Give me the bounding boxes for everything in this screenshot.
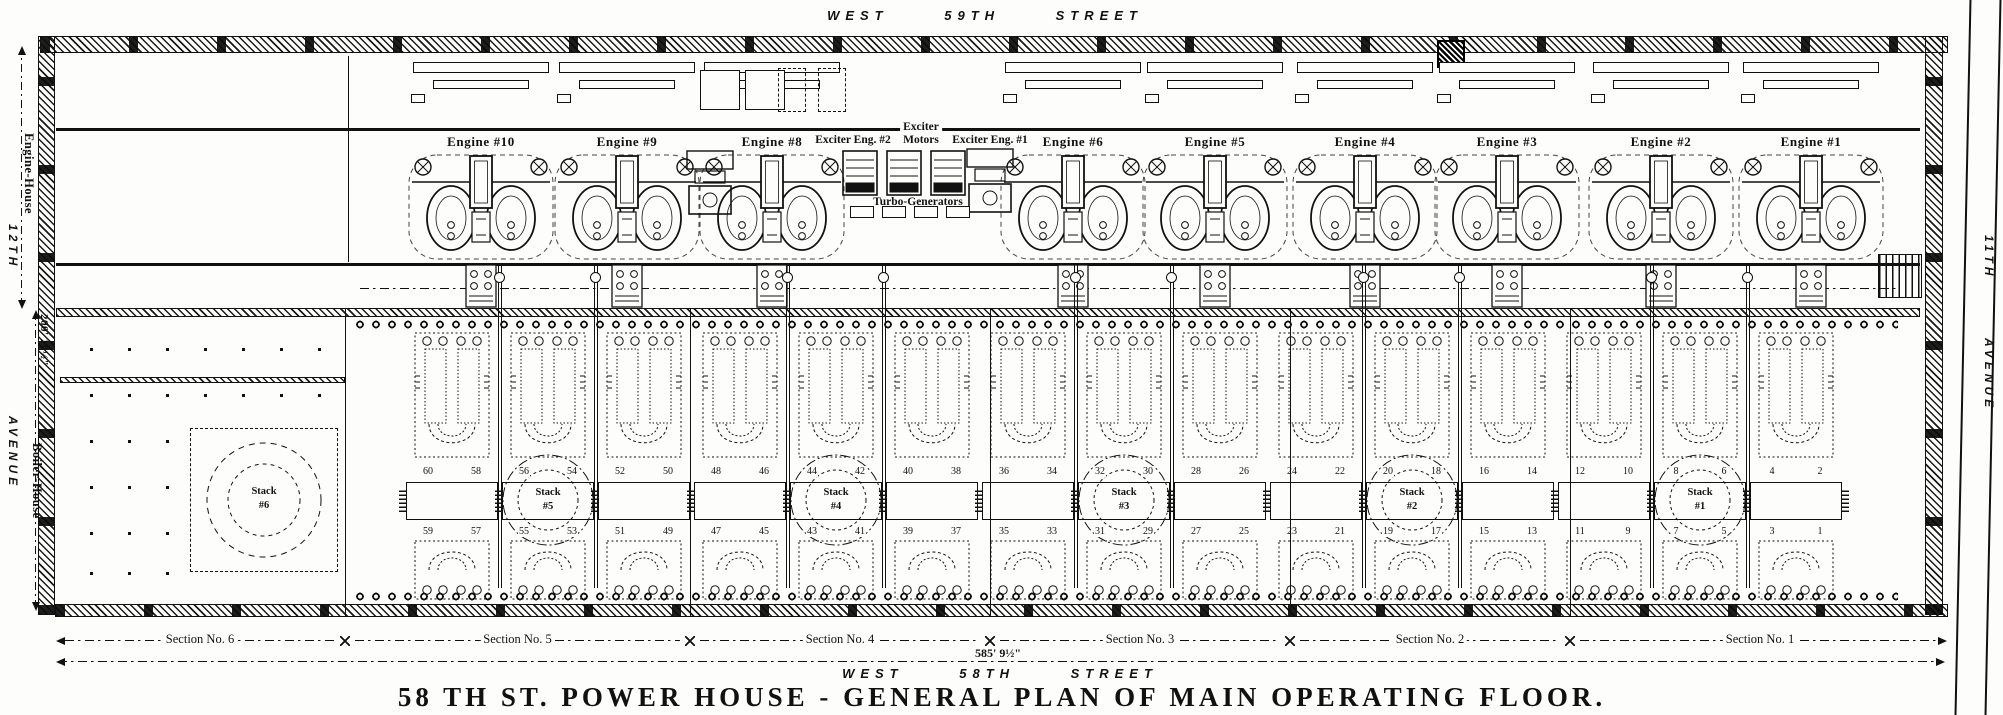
- engine-label: Engine #2: [1628, 134, 1695, 150]
- condenser-pump: [611, 264, 643, 308]
- boiler-number: 52: [614, 466, 626, 477]
- gallery-rect: [557, 94, 571, 103]
- column-dot: [166, 394, 169, 397]
- section-divider: [690, 308, 691, 616]
- stack-circles: [778, 442, 894, 558]
- boiler-battery-top: [1086, 332, 1162, 458]
- boiler-battery-top: [990, 332, 1066, 458]
- column-dot: [166, 532, 169, 535]
- boiler-number: 13: [1526, 526, 1538, 537]
- economizer: [598, 482, 690, 520]
- boiler-number: 43: [806, 526, 818, 537]
- boiler-battery-top: [510, 332, 586, 458]
- dim-cross: [985, 636, 995, 646]
- section-label: Section No. 4: [803, 632, 877, 647]
- boiler-number: 55: [518, 526, 530, 537]
- economizer: [886, 482, 978, 520]
- boiler-battery-top: [1662, 332, 1738, 458]
- exciter-motor-unit: [842, 150, 878, 196]
- boiler-battery-top: [1182, 332, 1258, 458]
- stack-label: #3: [1116, 501, 1133, 512]
- engine-drawing: [552, 152, 702, 262]
- boiler-battery-bottom: [1470, 540, 1546, 600]
- boiler-number: 39: [902, 526, 914, 537]
- boiler-number: 5: [1721, 526, 1728, 537]
- gallery-rect: [1003, 94, 1017, 103]
- boiler-battery-bottom: [1758, 540, 1834, 600]
- stack-label: #2: [1404, 501, 1421, 512]
- stack-label: Stack: [1108, 487, 1139, 498]
- boiler-battery-bottom: [894, 540, 970, 600]
- boiler-number: 29: [1142, 526, 1154, 537]
- boiler-number: 8: [1673, 466, 1680, 477]
- column-dot: [128, 532, 131, 535]
- boiler-battery-top: [798, 332, 874, 458]
- gallery-rect: [559, 62, 695, 73]
- boiler-number: 45: [758, 526, 770, 537]
- section-label: Section No. 3: [1103, 632, 1177, 647]
- stack-label: Stack: [532, 487, 563, 498]
- boiler-number: 20: [1382, 466, 1394, 477]
- gallery-rect: [411, 94, 425, 103]
- boiler-number: 26: [1238, 466, 1250, 477]
- boiler-number: 3: [1769, 526, 1776, 537]
- boiler-number: 33: [1046, 526, 1058, 537]
- boiler-number: 42: [854, 466, 866, 477]
- engine-label: Engine #6: [1040, 134, 1107, 150]
- column-dot: [166, 348, 169, 351]
- boiler-battery-top: [1374, 332, 1450, 458]
- boiler-number: 56: [518, 466, 530, 477]
- column-dot: [166, 440, 169, 443]
- boiler-battery-top: [1758, 332, 1834, 458]
- boiler-number: 54: [566, 466, 578, 477]
- section-label: Section No. 5: [480, 632, 554, 647]
- exciter-motor-unit: [930, 150, 966, 196]
- gallery-rect: [1743, 62, 1879, 73]
- column-dot: [90, 572, 93, 575]
- boiler-number: 31: [1094, 526, 1106, 537]
- gallery-rect: [1145, 94, 1159, 103]
- boiler-number: 2: [1817, 466, 1824, 477]
- engine-drawing: [1140, 152, 1290, 262]
- section-divider: [990, 308, 991, 616]
- boiler-number: 18: [1430, 466, 1442, 477]
- pipe-valve: [1454, 272, 1465, 283]
- column-dot: [280, 348, 283, 351]
- gallery-rect: [1295, 94, 1309, 103]
- column-dot: [90, 394, 93, 397]
- column-dot: [90, 486, 93, 489]
- column-dot: [128, 572, 131, 575]
- column-dot: [166, 572, 169, 575]
- engine-label: Engine #3: [1474, 134, 1541, 150]
- engine-drawing: [1290, 152, 1440, 262]
- column-dot: [242, 394, 245, 397]
- gallery-rect: [1763, 80, 1859, 89]
- boiler-number: 47: [710, 526, 722, 537]
- boiler-number: 23: [1286, 526, 1298, 537]
- boiler-number: 19: [1382, 526, 1394, 537]
- pipe-valve: [1646, 272, 1657, 283]
- section-label: Section No. 2: [1393, 632, 1467, 647]
- boiler-battery-top: [702, 332, 778, 458]
- boiler-number: 36: [998, 466, 1010, 477]
- boiler-number: 7: [1673, 526, 1680, 537]
- section-divider: [1290, 308, 1291, 616]
- boiler-number: 1: [1817, 526, 1824, 537]
- boiler-number: 40: [902, 466, 914, 477]
- boiler-number: 57: [470, 526, 482, 537]
- engine-drawing: [1586, 152, 1736, 262]
- boiler-battery-top: [894, 332, 970, 458]
- boiler-number: 25: [1238, 526, 1250, 537]
- turbo-generator-unit: [850, 206, 874, 218]
- pipe-valve: [590, 272, 601, 283]
- economizer: [1750, 482, 1842, 520]
- exciter-platform-unit: [818, 68, 846, 112]
- stack-label: #4: [828, 501, 845, 512]
- column-dot: [166, 486, 169, 489]
- engine-label: Engine #4: [1332, 134, 1399, 150]
- gallery-rect: [1297, 62, 1433, 73]
- dim-cross: [1565, 636, 1575, 646]
- column-dot: [90, 440, 93, 443]
- stack-label: Stack: [248, 486, 279, 497]
- boiler-number: 12: [1574, 466, 1586, 477]
- engine-label: Engine #5: [1182, 134, 1249, 150]
- economizer-tab: [1551, 490, 1558, 512]
- economizer: [694, 482, 786, 520]
- stack-circles: [490, 442, 606, 558]
- boiler-number: 46: [758, 466, 770, 477]
- pipe-valve: [1742, 272, 1753, 283]
- dim-cross: [1285, 636, 1295, 646]
- boiler-number: 22: [1334, 466, 1346, 477]
- boiler-battery-bottom: [1182, 540, 1258, 600]
- engine-label: Engine #10: [444, 134, 518, 150]
- economizer-tab: [1263, 490, 1270, 512]
- boiler-number: 10: [1622, 466, 1634, 477]
- boiler-number: 16: [1478, 466, 1490, 477]
- column-dot: [318, 394, 321, 397]
- gallery-rect: [433, 80, 529, 89]
- gallery-rect: [1459, 80, 1555, 89]
- section-label: Section No. 1: [1723, 632, 1797, 647]
- boiler-number: 59: [422, 526, 434, 537]
- boiler-number: 38: [950, 466, 962, 477]
- boiler-battery-bottom: [1566, 540, 1642, 600]
- boiler-battery-top: [606, 332, 682, 458]
- economizer: [1270, 482, 1362, 520]
- engine-drawing: [1432, 152, 1582, 262]
- economizer: [1174, 482, 1266, 520]
- gallery-rect: [1613, 80, 1709, 89]
- economizer: [982, 482, 1074, 520]
- boiler-number: 15: [1478, 526, 1490, 537]
- stack-label: Stack: [1684, 487, 1715, 498]
- stack-label: Stack: [1396, 487, 1427, 498]
- stack-label: #1: [1692, 501, 1709, 512]
- boiler-battery-top: [414, 332, 490, 458]
- gallery-rect: [1593, 62, 1729, 73]
- boiler-number: 17: [1430, 526, 1442, 537]
- boiler-number: 48: [710, 466, 722, 477]
- boiler-number: 35: [998, 526, 1010, 537]
- engine-label: Engine #8: [739, 134, 806, 150]
- engine-label: Engine #9: [594, 134, 661, 150]
- generated-plan-layer: Engine #10 Engine #9 Engine #8 Engine #6…: [0, 0, 2003, 715]
- column-dot: [128, 348, 131, 351]
- condenser-pump: [1057, 264, 1089, 308]
- boiler-number: 4: [1769, 466, 1776, 477]
- condenser-pump: [1795, 264, 1827, 308]
- engine-drawing: [406, 152, 556, 262]
- economizer-tab: [975, 490, 982, 512]
- economizer: [406, 482, 498, 520]
- gallery-rect: [1437, 94, 1451, 103]
- dim-arrow: [1938, 637, 1947, 645]
- power-house-floor-plan: WEST 59TH STREET WEST 58TH STREET Engine…: [0, 0, 2003, 715]
- exciter-platform-unit: [778, 68, 806, 112]
- economizer: [1558, 482, 1650, 520]
- gallery-rect: [1741, 94, 1755, 103]
- pipe-valve: [494, 272, 505, 283]
- boiler-number: 50: [662, 466, 674, 477]
- exciter-unit: [686, 150, 734, 216]
- boiler-number: 37: [950, 526, 962, 537]
- boiler-number: 27: [1190, 526, 1202, 537]
- gallery-rect: [1591, 94, 1605, 103]
- gallery-rect: [579, 80, 675, 89]
- boiler-number: 49: [662, 526, 674, 537]
- stack-label: #5: [540, 501, 557, 512]
- pipe-valve: [1166, 272, 1177, 283]
- engine-label: Engine #1: [1778, 134, 1845, 150]
- condenser-pump: [465, 264, 497, 308]
- stack-circles: [1354, 442, 1470, 558]
- stack-label: #6: [256, 500, 273, 511]
- condenser-pump: [1491, 264, 1523, 308]
- condenser-pump: [1199, 264, 1231, 308]
- section-divider: [345, 308, 346, 616]
- column-dot: [204, 348, 207, 351]
- gallery-rect: [1025, 80, 1121, 89]
- boiler-number: 21: [1334, 526, 1346, 537]
- turbo-generator-unit: [946, 206, 970, 218]
- economizer-tab: [1842, 490, 1849, 512]
- boiler-number: 30: [1142, 466, 1154, 477]
- boiler-number: 14: [1526, 466, 1538, 477]
- pipe-valve: [1358, 272, 1369, 283]
- column-dot: [242, 348, 245, 351]
- boiler-number: 51: [614, 526, 626, 537]
- gallery-rect: [1317, 80, 1413, 89]
- boiler-battery-bottom: [990, 540, 1066, 600]
- boiler-battery-bottom: [702, 540, 778, 600]
- boiler-battery-top: [1566, 332, 1642, 458]
- stack-circles: [1642, 442, 1758, 558]
- turbo-generator-unit: [882, 206, 906, 218]
- pipe-valve: [1070, 272, 1081, 283]
- dim-cross: [340, 636, 350, 646]
- boiler-number: 58: [470, 466, 482, 477]
- boiler-battery-bottom: [606, 540, 682, 600]
- column-dot: [90, 348, 93, 351]
- boiler-number: 60: [422, 466, 434, 477]
- gallery-rect: [1167, 80, 1263, 89]
- boiler-number: 9: [1625, 526, 1632, 537]
- boiler-number: 6: [1721, 466, 1728, 477]
- boiler-number: 34: [1046, 466, 1058, 477]
- condenser-pump: [756, 264, 788, 308]
- exciter-unit: [966, 148, 1014, 214]
- exciter-platform-unit: [700, 70, 740, 110]
- column-dot: [128, 486, 131, 489]
- column-dot: [280, 394, 283, 397]
- column-dot: [318, 348, 321, 351]
- stack-label: Stack: [820, 487, 851, 498]
- engine-drawing: [1736, 152, 1886, 262]
- boiler-number: 11: [1574, 526, 1586, 537]
- dim-cross: [685, 636, 695, 646]
- section-label: Section No. 6: [163, 632, 237, 647]
- economizer-tab: [399, 490, 406, 512]
- gallery-rect: [1147, 62, 1283, 73]
- engine-drawing: [998, 152, 1148, 262]
- pipe-valve: [878, 272, 889, 283]
- boiler-number: 28: [1190, 466, 1202, 477]
- column-dot: [204, 394, 207, 397]
- dim-arrow: [56, 637, 65, 645]
- boiler-number: 41: [854, 526, 866, 537]
- column-dot: [128, 440, 131, 443]
- boiler-number: 44: [806, 466, 818, 477]
- stack-circles: [1066, 442, 1182, 558]
- column-dot: [90, 532, 93, 535]
- pipe-valve: [782, 272, 793, 283]
- gallery-rect: [413, 62, 549, 73]
- column-dot: [128, 394, 131, 397]
- gallery-rect: [1005, 62, 1141, 73]
- boiler-battery-bottom: [414, 540, 490, 600]
- boiler-battery-top: [1470, 332, 1546, 458]
- boiler-number: 32: [1094, 466, 1106, 477]
- boiler-number: 53: [566, 526, 578, 537]
- section-divider: [1570, 308, 1571, 616]
- turbo-generator-unit: [914, 206, 938, 218]
- exciter-motor-unit: [886, 150, 922, 196]
- economizer: [1462, 482, 1554, 520]
- boiler-number: 24: [1286, 466, 1298, 477]
- gallery-rect: [1439, 62, 1575, 73]
